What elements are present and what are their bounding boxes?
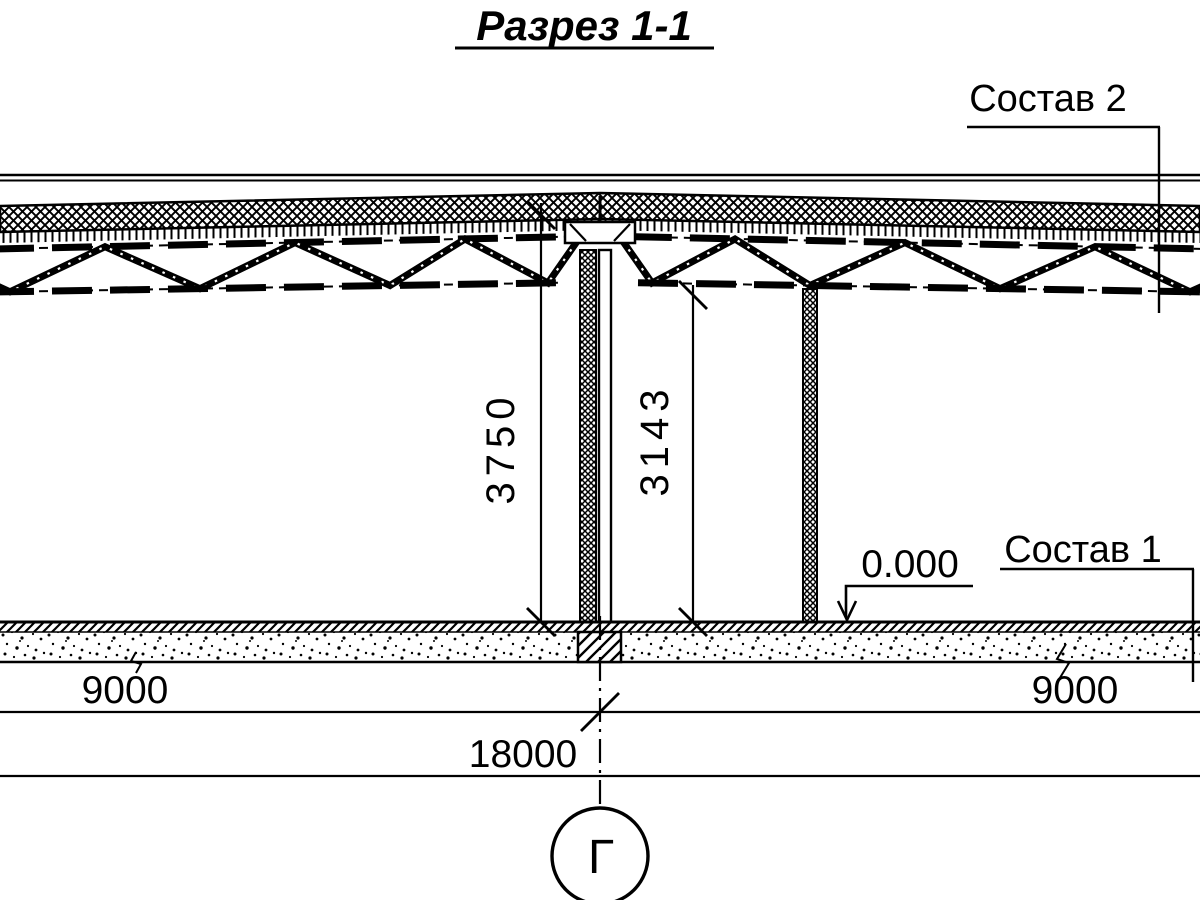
dim-label-3750: 3750 bbox=[479, 392, 523, 505]
center-column-pair bbox=[580, 250, 611, 622]
drawing-sheet: Разрез 1-1 bbox=[0, 0, 1200, 900]
truss-bottom-chord-left bbox=[0, 283, 562, 292]
dim-height-clear: 3143 bbox=[633, 281, 707, 636]
dim-label-span-total: 18000 bbox=[469, 733, 577, 776]
callout-sostav2-label: Состав 2 bbox=[969, 78, 1127, 120]
section-drawing: Разрез 1-1 bbox=[0, 0, 1200, 900]
center-column-left bbox=[580, 250, 596, 622]
elevation-bracket bbox=[846, 586, 973, 617]
dim-label-3143: 3143 bbox=[633, 384, 677, 497]
truss-bottom-chord-right bbox=[638, 283, 1200, 292]
axis-label: Г bbox=[588, 831, 614, 884]
partition-wall bbox=[803, 289, 817, 622]
elevation-mark: 0.000 bbox=[838, 543, 973, 620]
center-column-right bbox=[599, 250, 611, 622]
drawing-title: Разрез 1-1 bbox=[476, 2, 692, 49]
dim-label-span-left: 9000 bbox=[82, 669, 169, 712]
elevation-value: 0.000 bbox=[861, 543, 959, 586]
callout-sostav2: Состав 2 bbox=[967, 78, 1160, 313]
dim-label-span-right: 9000 bbox=[1032, 669, 1119, 712]
callout-sostav1-label: Состав 1 bbox=[1004, 529, 1162, 571]
ridge-plate-box bbox=[565, 222, 635, 243]
